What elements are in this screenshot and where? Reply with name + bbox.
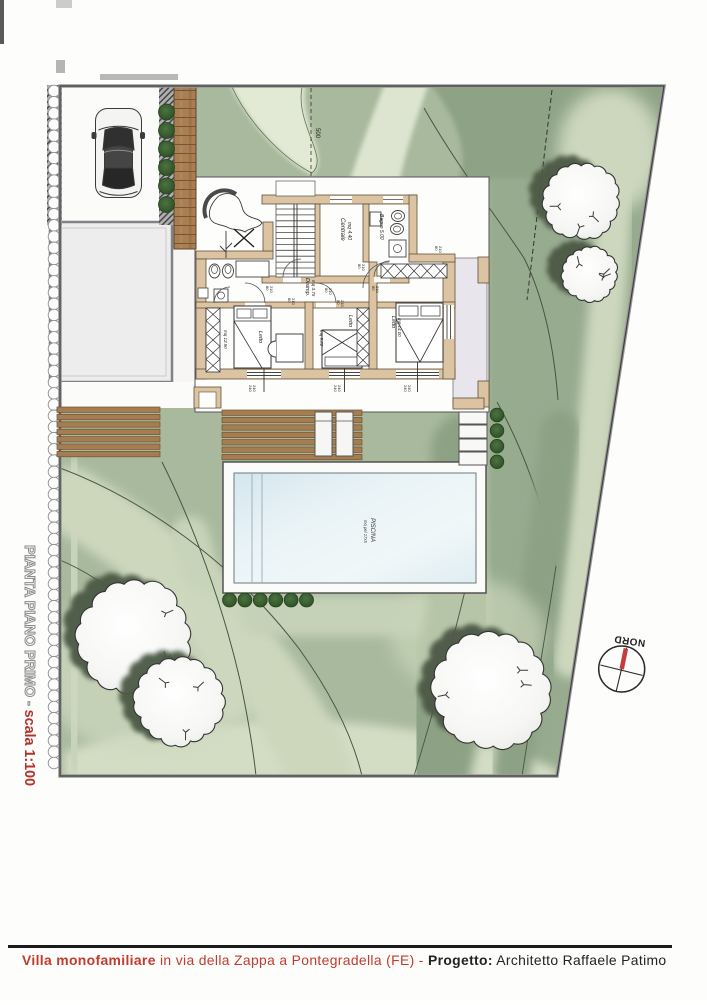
svg-text:mq 3.75: mq 3.75 <box>311 280 316 297</box>
svg-text:Centrale: Centrale <box>339 218 345 241</box>
svg-text:PISCINA: PISCINA <box>369 518 375 542</box>
svg-text:mq 14.00: mq 14.00 <box>397 318 402 337</box>
svg-text:Letto: Letto <box>257 331 263 343</box>
svg-text:mq 12.90: mq 12.90 <box>223 330 228 349</box>
svg-text:210: 210 <box>438 246 443 253</box>
svg-text:500: 500 <box>314 128 320 139</box>
svg-text:Letto: Letto <box>390 316 396 328</box>
svg-text:210: 210 <box>375 286 380 293</box>
svg-text:Letto: Letto <box>347 315 353 327</box>
svg-text:210: 210 <box>269 286 274 293</box>
svg-text:240: 240 <box>337 385 342 392</box>
svg-text:210: 210 <box>328 288 333 295</box>
svg-text:240: 240 <box>407 385 412 392</box>
svg-text:mq 9.00: mq 9.00 <box>319 330 324 347</box>
svg-text:240: 240 <box>252 385 257 392</box>
svg-text:Bagno 5.00: Bagno 5.00 <box>378 214 384 240</box>
svg-text:mq pel 17x5: mq pel 17x5 <box>363 520 368 543</box>
svg-text:210: 210 <box>291 298 296 305</box>
svg-text:mq 4.40: mq 4.40 <box>346 222 352 240</box>
svg-text:Disimp.: Disimp. <box>304 278 310 296</box>
svg-text:210: 210 <box>340 300 345 307</box>
svg-text:210: 210 <box>361 264 366 271</box>
